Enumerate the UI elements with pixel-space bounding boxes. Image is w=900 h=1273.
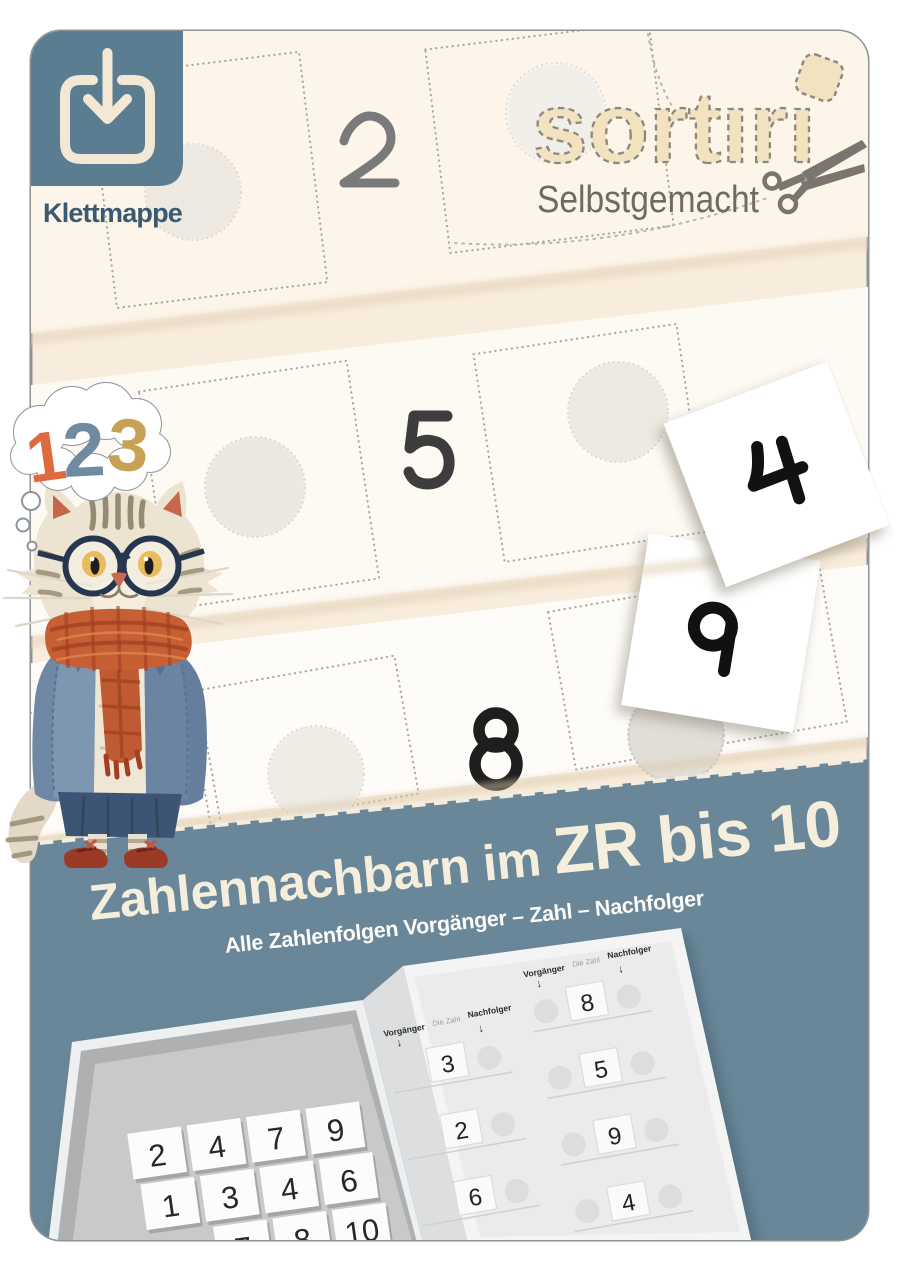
- svg-text:sortırı: sortırı: [532, 72, 816, 184]
- svg-text:3: 3: [105, 402, 152, 488]
- svg-text:2: 2: [60, 407, 107, 494]
- svg-text:Selbstgemacht: Selbstgemacht: [537, 179, 759, 221]
- svg-text:Klettmappe: Klettmappe: [43, 198, 183, 228]
